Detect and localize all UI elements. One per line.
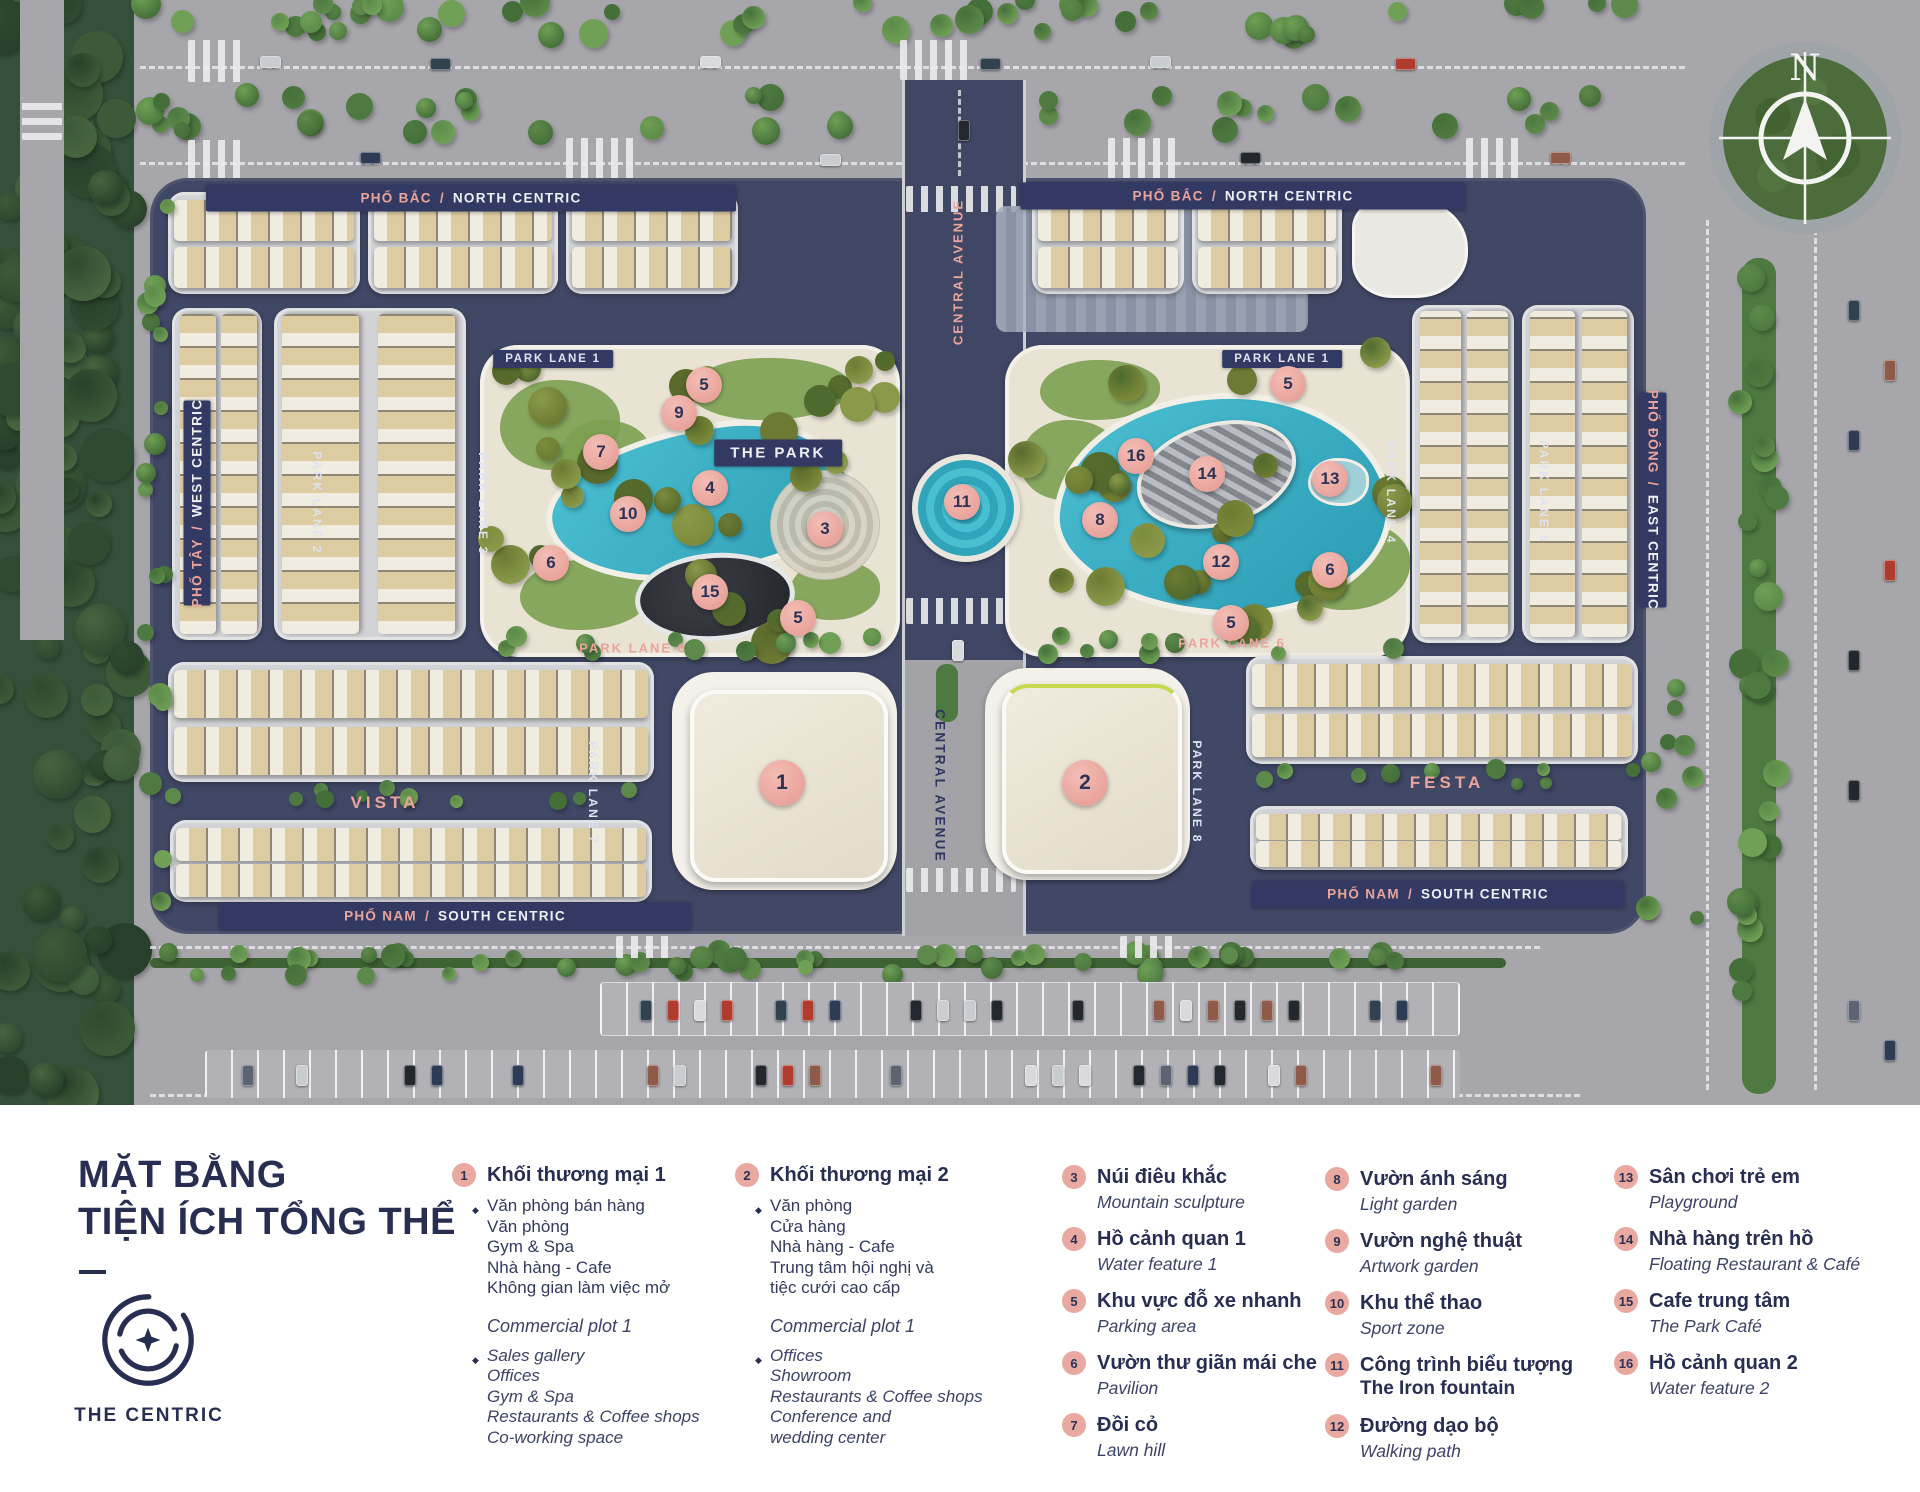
street-tree-icon: [1221, 947, 1238, 964]
house-row: [1467, 311, 1508, 637]
legend-group-1: 1Khối thương mại 1◆Văn phòng bán hàngVăn…: [452, 1164, 752, 1448]
car-icon: [1369, 1000, 1381, 1021]
forest-tree-icon: [66, 53, 100, 87]
legend-group-head: 2Khối thương mại 2: [735, 1164, 1035, 1187]
house-row: [174, 247, 354, 288]
street-name-vi: PHỐ TÂY: [190, 538, 205, 607]
road-label: PARK LANE 2: [310, 451, 324, 554]
street-tree-icon: [1212, 117, 1238, 143]
park-tree-icon: [1086, 567, 1125, 606]
street-tree-icon: [456, 92, 473, 109]
street-tree-icon: [1667, 700, 1683, 716]
car-icon: [1025, 1065, 1037, 1086]
car-icon: [700, 56, 721, 68]
car-icon: [1268, 1065, 1280, 1086]
crosswalk-icon: [1120, 936, 1180, 958]
car-icon: [1079, 1065, 1091, 1086]
street-tree-icon: [1749, 559, 1767, 577]
street-tree-icon: [316, 790, 334, 808]
legend-item-head: 11Công trình biểu tượng: [1325, 1354, 1605, 1377]
legend-item-en: Walking path: [1360, 1441, 1605, 1462]
masterplan-poster: N PARK LANE 1PARK LANE 1THE PARKPARK LAN…: [0, 0, 1920, 1492]
legend-item-title: Khu thể thao: [1360, 1292, 1482, 1315]
legend-item-head: 13Sân chơi trẻ em: [1614, 1166, 1904, 1189]
legend-column: 8Vườn ánh sángLight garden9Vườn nghệ thu…: [1325, 1168, 1605, 1477]
car-icon: [775, 1000, 787, 1021]
forest-tree-icon: [33, 928, 87, 982]
legend-number-badge: 16: [1614, 1351, 1638, 1375]
legend-number-badge: 4: [1062, 1227, 1086, 1251]
legend-item-13: 13Sân chơi trẻ emPlayground: [1614, 1166, 1904, 1213]
street-name-vi: PHỐ BẮC: [360, 191, 431, 206]
car-icon: [1288, 1000, 1300, 1021]
street-tree-icon: [776, 633, 796, 653]
car-icon: [1153, 1000, 1165, 1021]
street-tree-icon: [131, 0, 161, 19]
street-tree-icon: [1386, 952, 1404, 970]
car-icon: [802, 1000, 814, 1021]
house-row: [1582, 311, 1627, 637]
brand-logo: [100, 1292, 196, 1393]
forest-tree-icon: [47, 823, 74, 850]
street-tree-icon: [1256, 771, 1273, 788]
map-marker-6: 6: [1312, 552, 1348, 588]
street-tree-icon: [917, 945, 937, 965]
road-dash-line: [1706, 220, 1709, 1090]
legend-item-en: Light garden: [1360, 1194, 1605, 1215]
legend-item-11: 11Công trình biểu tượngThe Iron fountain: [1325, 1354, 1605, 1400]
crosswalk-icon: [616, 936, 676, 958]
legend-item-16: 16Hồ cảnh quan 2Water feature 2: [1614, 1352, 1904, 1399]
legend-item-5: 5Khu vực đỗ xe nhanhParking area: [1062, 1290, 1322, 1337]
bullet-icon: ◆: [472, 1200, 479, 1221]
street-tree-icon: [297, 111, 321, 135]
crosswalk-icon: [188, 140, 248, 182]
legend-en-list-line: Restaurants & Coffee shops: [770, 1387, 1035, 1408]
park-tree-icon: [804, 385, 836, 417]
car-icon: [1848, 650, 1860, 671]
legend-en-list-line: Showroom: [770, 1366, 1035, 1387]
street-tree-icon: [520, 0, 550, 17]
street-tree-icon: [1277, 763, 1293, 779]
street-tree-icon: [472, 954, 489, 971]
street-tree-icon: [997, 3, 1018, 24]
car-icon: [1207, 1000, 1219, 1021]
street-tree-icon: [329, 22, 347, 40]
car-icon: [1848, 430, 1860, 451]
brand-name: THE CENTRIC: [64, 1405, 234, 1427]
slash-separator: /: [190, 525, 205, 530]
legend-item-10: 10Khu thể thaoSport zone: [1325, 1292, 1605, 1339]
street-tree-icon: [144, 285, 166, 307]
slash-separator: /: [1646, 482, 1661, 487]
park-tree-icon: [1049, 568, 1074, 593]
street-tree-icon: [1368, 948, 1386, 966]
street-banner: PHỐ NAM/SOUTH CENTRIC: [1252, 881, 1624, 908]
park-tree-icon: [1008, 441, 1045, 478]
street-tree-icon: [1015, 0, 1035, 10]
street-name-en: SOUTH CENTRIC: [438, 909, 566, 924]
street-tree-icon: [1682, 766, 1704, 788]
street-tree-icon: [1141, 633, 1158, 650]
legend-item-head: 7Đồi cỏ: [1062, 1414, 1322, 1437]
car-icon: [755, 1065, 767, 1086]
street-tree-icon: [955, 5, 984, 34]
street-tree-icon: [438, 0, 465, 27]
legend-item-en: Playground: [1649, 1192, 1904, 1213]
car-icon: [1133, 1065, 1145, 1086]
legend-item-7: 7Đồi cỏLawn hill: [1062, 1414, 1322, 1461]
street-tree-icon: [1765, 486, 1789, 510]
street-tree-icon: [1636, 896, 1660, 920]
house-row: [176, 828, 646, 861]
title-dash: [79, 1270, 106, 1274]
house-row: [1420, 311, 1461, 637]
street-tree-icon: [621, 782, 637, 798]
car-icon: [667, 1000, 679, 1021]
car-icon: [1234, 1000, 1246, 1021]
legend-vi-list-line: Văn phòng: [487, 1217, 752, 1238]
map-marker-4: 4: [692, 470, 728, 506]
legend-title-line2: TIỆN ÍCH TỔNG THỂ: [78, 1199, 456, 1246]
street-tree-icon: [930, 14, 953, 37]
legend-vi-list-line: Cửa hàng: [770, 1217, 1035, 1238]
street-tree-icon: [1115, 11, 1136, 32]
car-icon: [952, 640, 964, 661]
street-tree-icon: [1038, 644, 1058, 664]
street-name-vi: PHỐ NAM: [344, 909, 417, 924]
road-label: PARK LANE 8: [1190, 740, 1204, 843]
car-icon: [430, 58, 451, 70]
legend-item-title: Đường dạo bộ: [1360, 1415, 1499, 1438]
street-tree-icon: [1579, 85, 1601, 107]
forest-tree-icon: [74, 796, 111, 833]
car-icon: [1187, 1065, 1199, 1086]
map-marker-6: 6: [533, 545, 569, 581]
crosswalk-icon: [906, 598, 1016, 624]
legend-item-title: Sân chơi trẻ em: [1649, 1166, 1800, 1189]
house-row: [1038, 247, 1178, 288]
park-tree-icon: [551, 459, 581, 489]
car-icon: [958, 120, 970, 141]
street-tree-icon: [1335, 96, 1361, 122]
car-icon: [360, 152, 381, 164]
street-banner: PHỐ BẮC/NORTH CENTRIC: [206, 185, 736, 212]
crosswalk-icon: [188, 40, 248, 82]
legend-en-list-line: Gym & Spa: [487, 1387, 752, 1408]
car-icon: [512, 1065, 524, 1086]
street-tree-icon: [138, 482, 153, 497]
street-tree-icon: [285, 964, 307, 986]
street-tree-icon: [1140, 2, 1158, 20]
legend-item-6: 6Vườn thư giãn mái chePavilion: [1062, 1352, 1322, 1399]
street-name-en: WEST CENTRIC: [190, 399, 205, 517]
bullet-icon: ◆: [472, 1350, 479, 1371]
street-tree-icon: [271, 13, 289, 31]
park-tree-icon: [528, 387, 567, 426]
car-icon: [296, 1065, 308, 1086]
legend-item-head: 14Nhà hàng trên hồ: [1614, 1228, 1904, 1251]
park-tree-icon: [718, 513, 742, 537]
street-tree-icon: [1217, 91, 1242, 116]
townhouse-block: [274, 308, 466, 640]
legend-en-list-line: Offices: [487, 1366, 752, 1387]
car-icon: [1395, 58, 1416, 70]
legend-title-line1: MẶT BẰNG: [78, 1152, 456, 1199]
townhouse-block: [1246, 656, 1638, 764]
forest-tree-icon: [25, 675, 68, 718]
street-tree-icon: [1732, 981, 1752, 1001]
street-banner: PHỐ TÂY/WEST CENTRIC: [184, 401, 211, 606]
legend-item-8: 8Vườn ánh sángLight garden: [1325, 1168, 1605, 1215]
road-dash-line: [150, 946, 1540, 949]
street-tree-icon: [1656, 788, 1677, 809]
street-name-en: EAST CENTRIC: [1646, 495, 1661, 610]
forest-tree-icon: [81, 684, 113, 716]
street-tree-icon: [1080, 644, 1094, 658]
street-tree-icon: [1626, 763, 1640, 777]
park-tree-icon: [536, 437, 560, 461]
street-name-en: SOUTH CENTRIC: [1421, 887, 1549, 902]
car-icon: [260, 56, 281, 68]
map-marker-12: 12: [1203, 544, 1239, 580]
street-tree-icon: [144, 433, 166, 455]
street-tree-icon: [1641, 752, 1661, 772]
legend-item-title: Hồ cảnh quan 1: [1097, 1228, 1246, 1251]
forest-tree-icon: [60, 906, 85, 931]
map-marker-2: 2: [1062, 760, 1108, 806]
street-tree-icon: [153, 93, 170, 110]
car-icon: [1848, 1000, 1860, 1021]
legend-item-title: Cafe trung tâm: [1649, 1290, 1790, 1313]
map-marker-5: 5: [780, 600, 816, 636]
car-icon: [1884, 360, 1896, 381]
crosswalk-icon: [1466, 138, 1526, 182]
street-tree-icon: [174, 122, 190, 138]
townhouse-block: [170, 820, 652, 902]
legend-column: 2Khối thương mại 2◆Văn phòngCửa hàngNhà …: [735, 1164, 1035, 1448]
park-tree-icon: [654, 487, 681, 514]
legend-item-en: Water feature 1: [1097, 1254, 1322, 1275]
car-icon: [1072, 1000, 1084, 1021]
street-tree-icon: [417, 17, 442, 42]
street-tree-icon: [442, 967, 456, 981]
park-tree-icon: [1109, 473, 1130, 494]
street-tree-icon: [1188, 946, 1210, 968]
street-tree-icon: [1388, 2, 1407, 21]
park-tree-icon: [840, 387, 875, 422]
street-tree-icon: [152, 892, 171, 911]
legend-group-head: 1Khối thương mại 1: [452, 1164, 752, 1187]
car-icon: [1180, 1000, 1192, 1021]
car-icon: [910, 1000, 922, 1021]
car-icon: [1150, 56, 1171, 68]
street-tree-icon: [863, 628, 881, 646]
car-icon: [694, 1000, 706, 1021]
legend-en-list-line: Restaurants & Coffee shops: [487, 1407, 752, 1428]
street-tree-icon: [1124, 109, 1151, 136]
forest-tree-icon: [110, 641, 144, 675]
townhouse-block: [1412, 305, 1514, 643]
car-icon: [782, 1065, 794, 1086]
street-tree-icon: [1690, 911, 1704, 925]
legend-en-title: Commercial plot 1: [770, 1316, 1035, 1337]
legend-number-badge: 2: [735, 1163, 759, 1187]
street-tree-icon: [1024, 944, 1045, 965]
street-tree-icon: [1507, 87, 1531, 111]
street-tree-icon: [549, 792, 567, 810]
street-tree-icon: [752, 117, 780, 145]
street-tree-icon: [1302, 84, 1329, 111]
house-row: [1256, 814, 1622, 840]
street-tree-icon: [506, 626, 527, 647]
street-name-en: NORTH CENTRIC: [1225, 189, 1354, 204]
legend-item-en: The Park Café: [1649, 1316, 1904, 1337]
car-icon: [1430, 1065, 1442, 1086]
street-tree-icon: [1074, 953, 1092, 971]
park-tree-icon: [875, 351, 895, 371]
street-tree-icon: [154, 401, 168, 415]
townhouse-block: [1250, 806, 1628, 870]
street-tree-icon: [221, 966, 236, 981]
legend-vi-list-line: Gym & Spa: [487, 1237, 752, 1258]
house-row: [374, 247, 552, 288]
legend-item-12: 12Đường dạo bộWalking path: [1325, 1415, 1605, 1462]
street-tree-icon: [1727, 888, 1755, 916]
legend-vi-list: ◆Văn phòngCửa hàngNhà hàng - CafeTrung t…: [770, 1196, 1035, 1299]
street-name-vi: PHỐ ĐÔNG: [1646, 390, 1661, 474]
legend-en-list-line: ◆Offices: [770, 1346, 1035, 1367]
map-marker-8: 8: [1082, 502, 1118, 538]
masterplan-map: N PARK LANE 1PARK LANE 1THE PARKPARK LAN…: [0, 0, 1920, 1105]
legend-item-head: 10Khu thể thao: [1325, 1292, 1605, 1315]
road-label: PARK LANE 5: [1537, 440, 1551, 543]
street-tree-icon: [1099, 630, 1118, 649]
road-label: PARK LANE 1: [493, 350, 613, 368]
car-icon: [721, 1000, 733, 1021]
car-icon: [890, 1065, 902, 1086]
map-marker-15: 15: [692, 574, 728, 610]
legend-column: 3Núi điêu khắcMountain sculpture4Hồ cảnh…: [1062, 1166, 1322, 1476]
forest-tree-icon: [82, 846, 119, 883]
house-row: [572, 247, 732, 288]
legend-number-badge: 12: [1325, 1414, 1349, 1438]
legend-column: 13Sân chơi trẻ emPlayground14Nhà hàng tr…: [1614, 1166, 1904, 1414]
street-tree-icon: [346, 93, 373, 120]
legend-en-list-line: Conference and: [770, 1407, 1035, 1428]
legend-number-badge: 13: [1614, 1165, 1638, 1189]
street-tree-icon: [1611, 0, 1638, 18]
street-tree-icon: [1383, 638, 1404, 659]
road-dash-line: [1814, 220, 1817, 1090]
legend-en-list: ◆Sales galleryOfficesGym & SpaRestaurant…: [487, 1346, 752, 1449]
street-tree-icon: [357, 967, 375, 985]
car-icon: [404, 1065, 416, 1086]
crosswalk-icon: [22, 96, 62, 140]
forest-tree-icon: [80, 1001, 135, 1056]
street-tree-icon: [1674, 735, 1695, 756]
street-tree-icon: [1745, 359, 1773, 387]
legend-item-4: 4Hồ cảnh quan 1Water feature 1: [1062, 1228, 1322, 1275]
map-marker-3: 3: [807, 511, 843, 547]
crosswalk-icon: [1108, 138, 1178, 182]
street-tree-icon: [1738, 512, 1757, 531]
street-tree-icon: [528, 120, 553, 145]
slash-separator: /: [440, 191, 445, 206]
house-row: [378, 314, 455, 634]
street-tree-icon: [1762, 650, 1789, 677]
forest-tree-icon: [33, 750, 82, 799]
legend-number-badge: 6: [1062, 1351, 1086, 1375]
street-tree-icon: [724, 947, 747, 970]
legend-item-title: Vườn nghệ thuật: [1360, 1230, 1522, 1253]
street-tree-icon: [139, 772, 162, 795]
street-tree-icon: [1486, 759, 1506, 779]
legend-en-list-line: ◆Sales gallery: [487, 1346, 752, 1367]
street-tree-icon: [165, 788, 181, 804]
legend-item-en: Floating Restaurant & Café: [1649, 1254, 1904, 1275]
legend-item-14: 14Nhà hàng trên hồFloating Restaurant & …: [1614, 1228, 1904, 1275]
legend-vi-list-line: Nhà hàng - Cafe: [770, 1237, 1035, 1258]
map-marker-11: 11: [944, 484, 980, 520]
centric-logo-icon: [100, 1292, 196, 1388]
street-tree-icon: [153, 327, 168, 342]
park-tree-icon: [1108, 365, 1145, 402]
car-icon: [1884, 560, 1896, 581]
map-marker-9: 9: [661, 395, 697, 431]
legend-item-title: Vườn thư giãn mái che: [1097, 1352, 1317, 1375]
car-icon: [1214, 1065, 1226, 1086]
street-tree-icon: [1039, 91, 1058, 110]
legend-item-en: Mountain sculpture: [1097, 1192, 1322, 1213]
forest-tree-icon: [56, 246, 111, 301]
street-banner: PHỐ NAM/SOUTH CENTRIC: [219, 903, 691, 930]
map-marker-1: 1: [759, 760, 805, 806]
car-icon: [1884, 1040, 1896, 1061]
street-tree-icon: [137, 624, 154, 641]
house-row: [221, 314, 257, 634]
legend-item-9: 9Vườn nghệ thuậtArtwork garden: [1325, 1230, 1605, 1277]
crosswalk-icon: [566, 138, 636, 182]
legend-item-head: 16Hồ cảnh quan 2: [1614, 1352, 1904, 1375]
legend-item-en: Water feature 2: [1649, 1378, 1904, 1399]
legend-item-head: 9Vườn nghệ thuật: [1325, 1230, 1605, 1253]
forest-tree-icon: [84, 926, 112, 954]
street-tree-icon: [505, 950, 522, 967]
street-tree-icon: [1298, 26, 1315, 43]
street-tree-icon: [1381, 764, 1400, 783]
street-tree-icon: [1519, 0, 1544, 19]
street-name-vi: PHỐ BẮC: [1132, 189, 1203, 204]
road-label: CENTRAL AVENUE: [951, 199, 966, 345]
street-tree-icon: [1511, 778, 1523, 790]
legend-item-head: 4Hồ cảnh quan 1: [1062, 1228, 1322, 1251]
car-icon: [937, 1000, 949, 1021]
legend-number-badge: 1: [452, 1163, 476, 1187]
house-row: [176, 864, 646, 897]
street-tree-icon: [1588, 0, 1606, 12]
street-tree-icon: [1034, 23, 1051, 40]
park-tree-icon: [1227, 365, 1257, 395]
street-tree-icon: [154, 850, 172, 868]
street-tree-icon: [1763, 760, 1790, 787]
car-icon: [647, 1065, 659, 1086]
legend-number-badge: 11: [1325, 1353, 1349, 1377]
car-icon: [991, 1000, 1003, 1021]
park-tree-icon: [491, 545, 530, 584]
house-row: [1252, 664, 1632, 707]
legend-item-en: The Iron fountain: [1360, 1378, 1605, 1400]
